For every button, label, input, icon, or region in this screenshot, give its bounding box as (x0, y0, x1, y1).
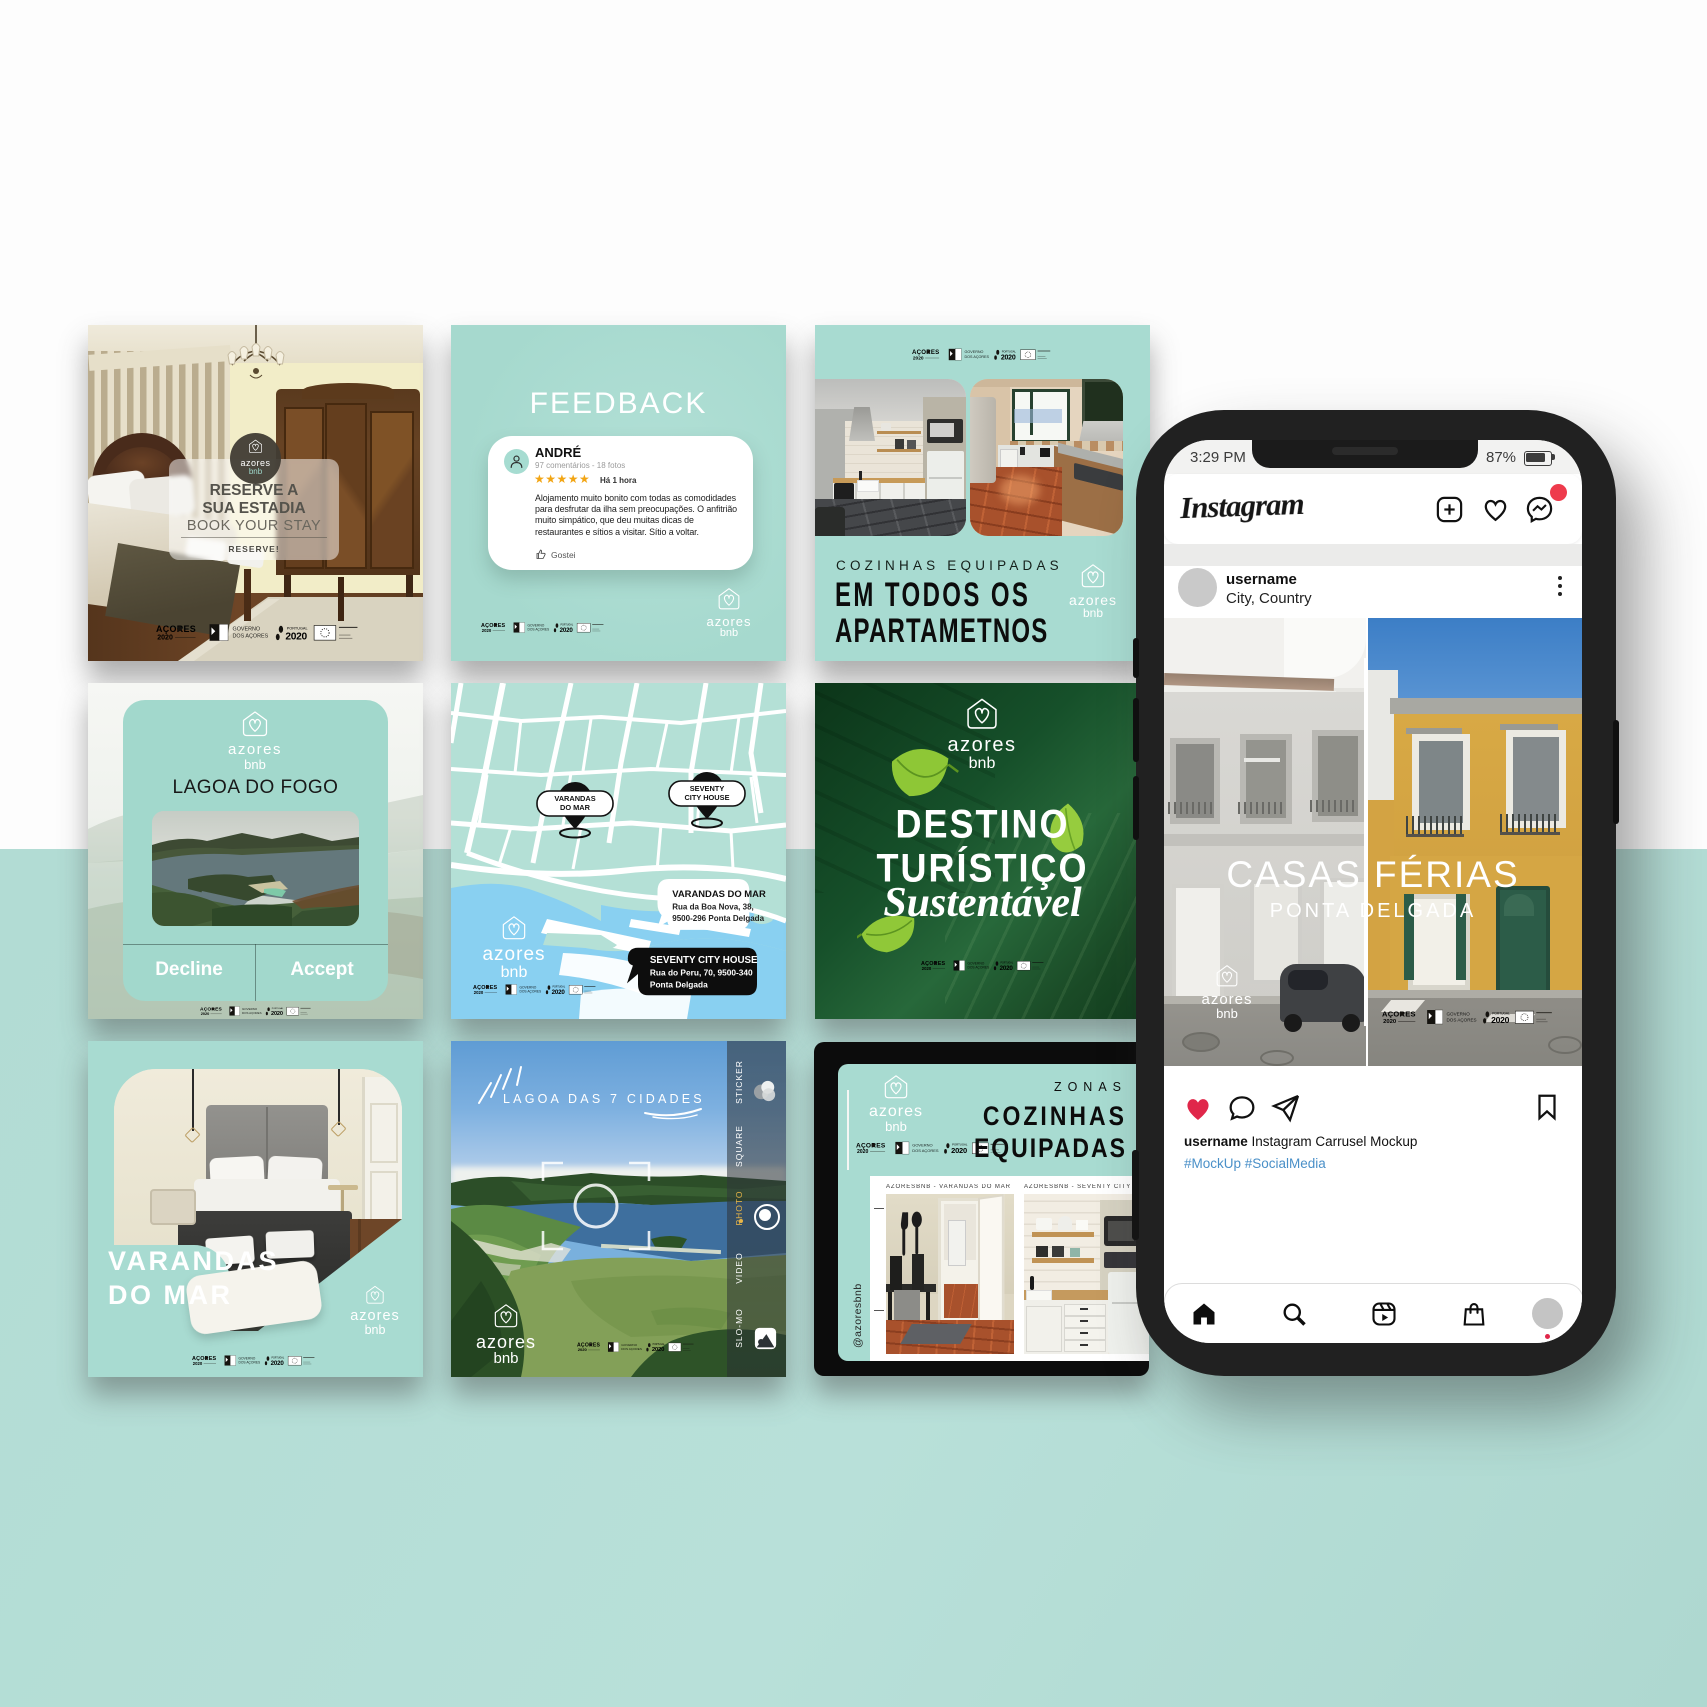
svg-text:VARANDAS: VARANDAS (554, 794, 595, 803)
svg-text:9500-296 Ponta Delgada: 9500-296 Ponta Delgada (672, 914, 764, 923)
svg-text:SEVENTY: SEVENTY (690, 784, 725, 793)
svg-text:SEVENTY CITY HOUSE: SEVENTY CITY HOUSE (650, 955, 758, 966)
svg-text:VARANDAS DO MAR: VARANDAS DO MAR (672, 888, 766, 899)
svg-text:Rua do Peru, 70, 9500-340: Rua do Peru, 70, 9500-340 (650, 968, 753, 978)
svg-text:CITY HOUSE: CITY HOUSE (684, 793, 729, 802)
svg-text:DO MAR: DO MAR (560, 803, 591, 812)
svg-text:Ponta Delgada: Ponta Delgada (650, 980, 708, 990)
svg-text:Rua da Boa Nova, 38,: Rua da Boa Nova, 38, (672, 902, 754, 911)
